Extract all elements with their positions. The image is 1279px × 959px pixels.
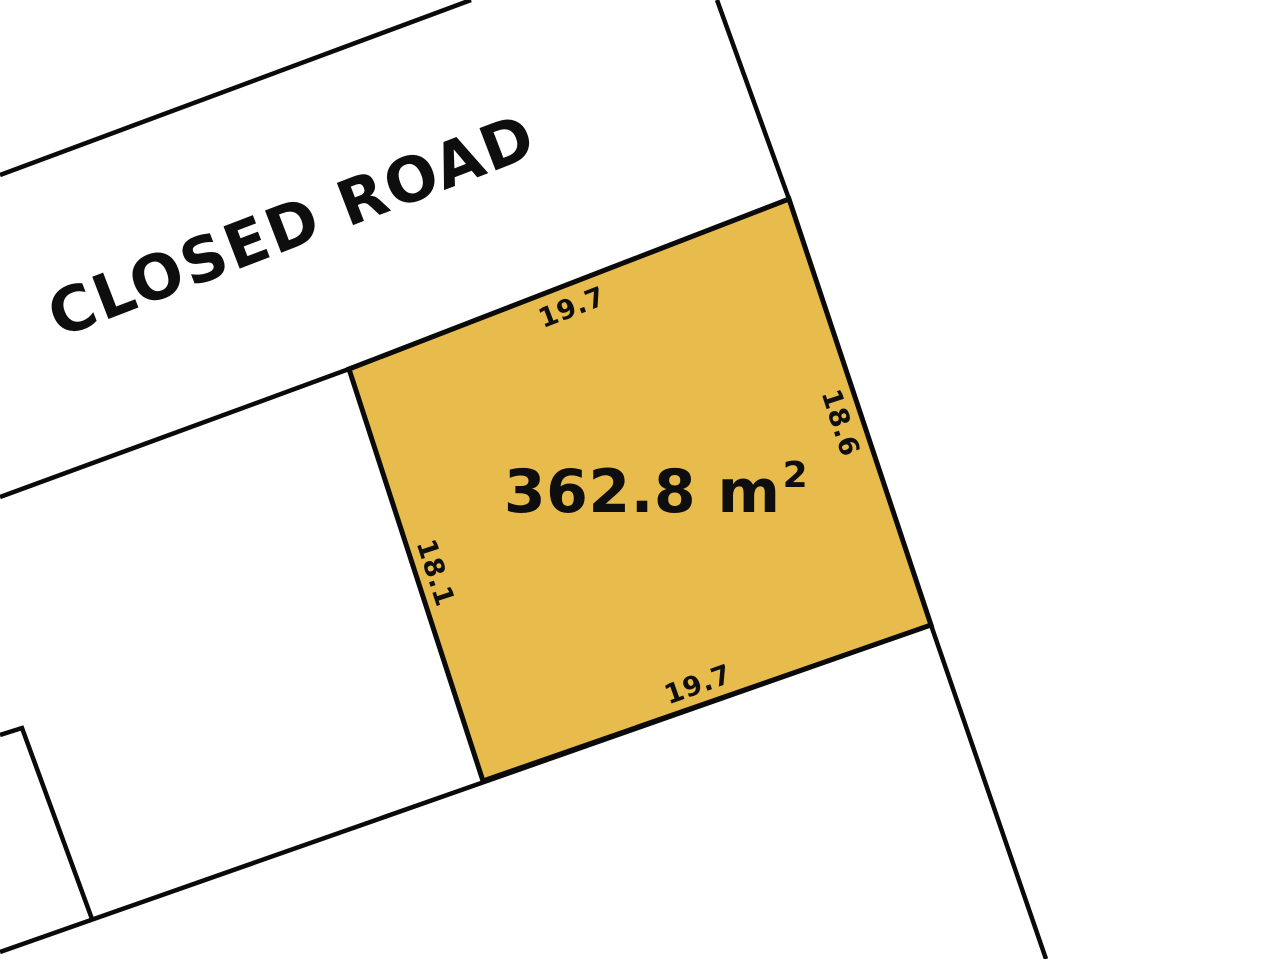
parcel-area-label: 362.8 m2 — [504, 462, 806, 522]
southwest-lot-boundary-line — [0, 728, 92, 919]
parcel-area-exponent: 2 — [783, 455, 809, 496]
cadastral-plan: CLOSED ROAD 19.7 18.6 18.1 19.7 362.8 m2 — [0, 0, 1279, 959]
parcel-area-value: 362.8 m — [504, 457, 781, 527]
road-lower-boundary-line — [0, 369, 349, 497]
